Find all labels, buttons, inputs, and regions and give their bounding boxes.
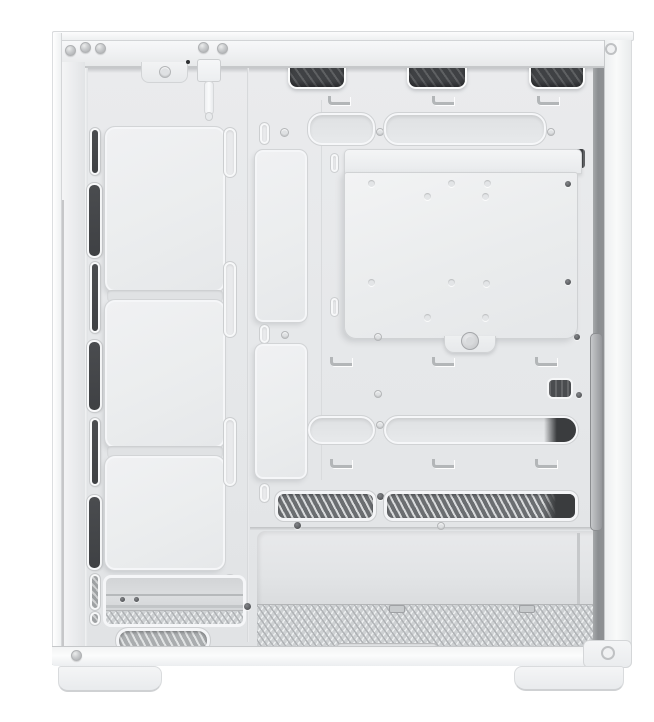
rear-cable-cutout (547, 378, 573, 399)
screw (294, 522, 301, 529)
cable-hook (330, 459, 352, 468)
tie-slit (331, 154, 338, 172)
bay-mesh (106, 610, 243, 624)
screw (376, 421, 384, 429)
tie-slit (260, 325, 269, 343)
standoff-hole (484, 180, 491, 187)
screw (376, 128, 384, 136)
cable-hook (330, 357, 352, 366)
front-vent-slot-wide (87, 340, 102, 412)
front-vent-slot (90, 128, 100, 175)
bracket-screw (159, 66, 171, 78)
screw (576, 392, 582, 398)
screw (244, 603, 251, 610)
rivet (198, 42, 209, 53)
front-vent-slot-mesh (90, 612, 100, 625)
left-front-edge (52, 33, 62, 665)
front-vent-slot-wide (87, 495, 102, 570)
floor-clip (389, 605, 405, 613)
right-rear-frame (604, 40, 632, 662)
bay-rail (106, 605, 243, 608)
tray-panel-lower (255, 344, 307, 479)
screw (374, 390, 382, 398)
rivet (71, 650, 82, 661)
front-vent-slot-wide (87, 183, 102, 258)
rivet (80, 42, 91, 53)
tray-panel-upper (255, 150, 307, 322)
perforated-floor (257, 604, 594, 650)
cable-hook (432, 357, 454, 366)
standoff-hole (448, 180, 455, 187)
front-io-connector (197, 59, 221, 82)
bracket-oval-slot (224, 128, 236, 177)
tie-slit (331, 298, 338, 316)
fan-mount-plate-1 (105, 127, 225, 292)
filter-release-button (601, 646, 615, 660)
cable-hook (535, 357, 557, 366)
front-vent-slot (90, 418, 100, 486)
sensor-dot (186, 60, 190, 64)
rear-vertical-bar (590, 333, 603, 531)
cable-tip (205, 112, 213, 121)
routing-channel-top-left (308, 113, 375, 145)
fan-mount-plate-3 (105, 456, 225, 570)
shroud-mesh-slot-left (275, 491, 376, 521)
screw (565, 181, 571, 187)
screw (281, 331, 289, 339)
standoff-hole (482, 193, 489, 200)
front-vent-slot (90, 262, 100, 333)
screw (547, 128, 555, 136)
screw (120, 597, 125, 602)
screw (134, 597, 139, 602)
cable-hook (328, 96, 350, 105)
routing-channel-mid-left (308, 416, 375, 444)
standoff-hole (368, 180, 375, 187)
rivet (95, 43, 106, 54)
fan-mount-plate-2 (105, 300, 225, 448)
cable-hook (432, 459, 454, 468)
standoff-hole (424, 314, 431, 321)
front-io-cable (204, 81, 214, 115)
tie-slit (260, 123, 269, 144)
standoff-hole (482, 314, 489, 321)
case-foot-left (58, 666, 162, 692)
rivet (65, 45, 76, 56)
floor-clip (519, 605, 535, 613)
tray-seam-left (247, 68, 249, 642)
standoff-hole (448, 279, 455, 286)
routing-channel-mid-right (384, 416, 578, 444)
bottom-frame (52, 646, 632, 666)
front-panel-gap-line (62, 200, 64, 646)
thumbscrew-center (466, 337, 474, 345)
screw (565, 279, 571, 285)
mesh-dark-end (543, 494, 575, 518)
channel-dark-end (544, 418, 576, 442)
screw (437, 522, 445, 530)
standoff-hole (368, 279, 375, 286)
screw (377, 493, 384, 500)
bay-rail (106, 594, 243, 596)
screw (574, 334, 580, 340)
screw (374, 333, 382, 341)
bracket-plate-rail (344, 149, 582, 174)
cable-hook (535, 459, 557, 468)
bracket-plate (344, 172, 578, 339)
front-panel-band (62, 62, 85, 646)
standoff-hole (424, 193, 431, 200)
rivet (217, 43, 228, 54)
bracket-oval-slot (224, 262, 236, 337)
drive-bay-window (103, 575, 246, 627)
cable-hook (537, 96, 559, 105)
shroud-mesh-slot-right (384, 491, 578, 521)
bracket-oval-slot (224, 418, 236, 486)
standoff-hole (483, 280, 490, 287)
pc-case-product-photo (0, 0, 654, 722)
frame-screw-hole (605, 43, 617, 55)
cable-hook (432, 96, 454, 105)
routing-channel-top-right (384, 113, 546, 145)
screw (280, 128, 289, 137)
tie-slit (260, 484, 269, 502)
case-foot-right (514, 666, 624, 691)
front-vent-slot-mesh (90, 574, 100, 610)
